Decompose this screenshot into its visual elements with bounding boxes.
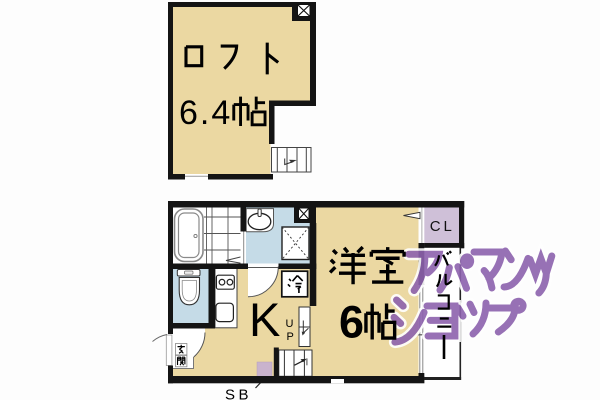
svg-text:CL: CL [430, 218, 455, 235]
svg-text:6.4: 6.4 [179, 94, 232, 132]
svg-text:P: P [287, 331, 294, 343]
svg-text:SB: SB [225, 387, 252, 400]
svg-text:K: K [249, 293, 280, 346]
svg-text:6: 6 [339, 297, 364, 348]
svg-text:U: U [286, 318, 294, 330]
